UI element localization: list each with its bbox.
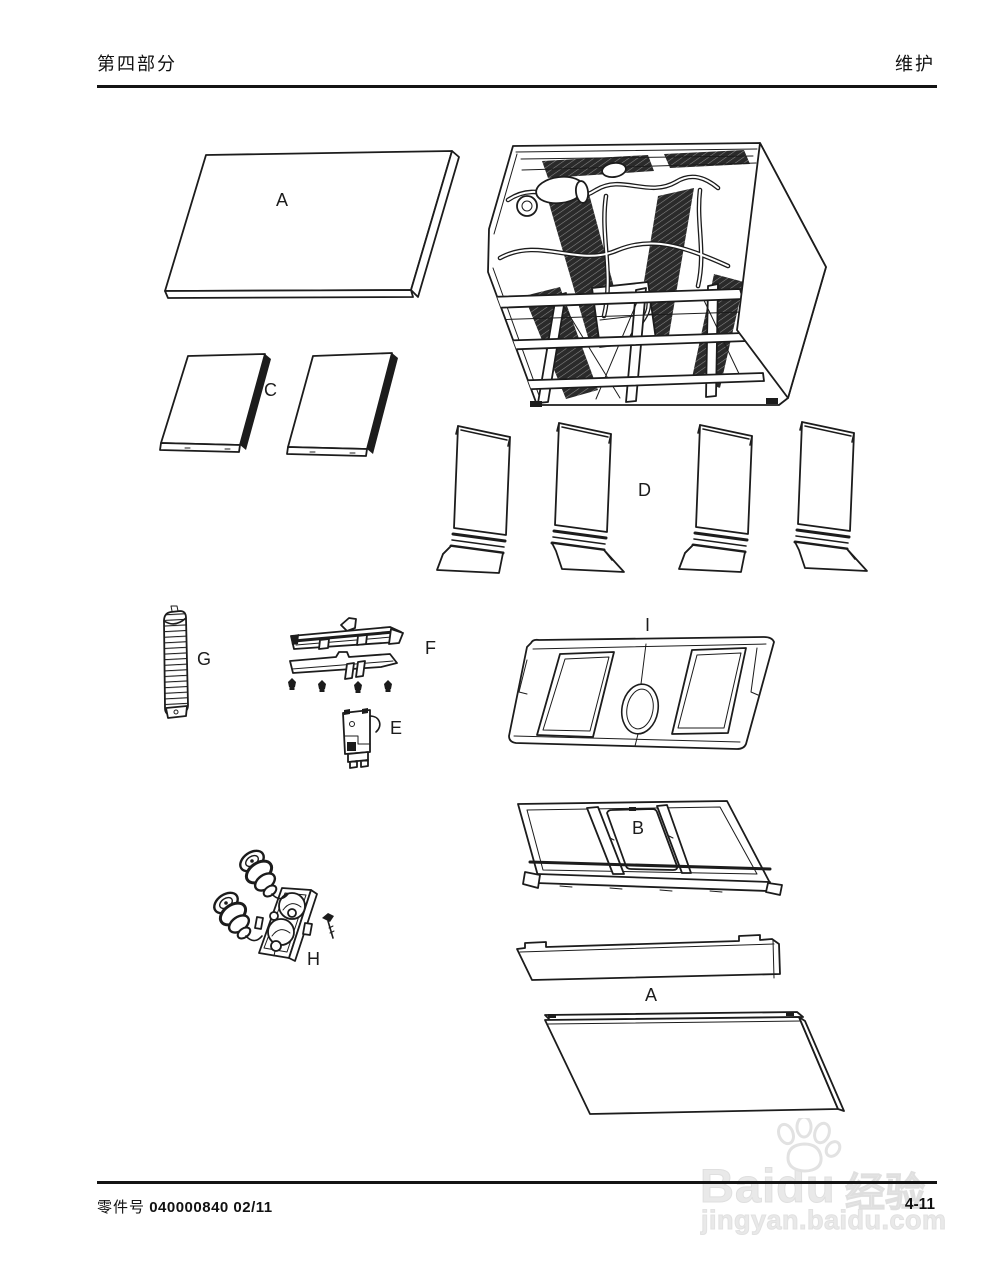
- bracket-e-drawing: [343, 708, 380, 768]
- manual-page: 第四部分 维护 Baidu 经验 jingyan.baidu.com: [0, 0, 989, 1280]
- part-label-g: G: [197, 649, 211, 669]
- panel-c-drawing: [160, 353, 398, 456]
- part-number-label: 零件号: [97, 1200, 145, 1216]
- panel-a-top-drawing: [165, 151, 459, 298]
- part-label-b: B: [632, 818, 644, 838]
- exploded-parts-diagram: A: [0, 0, 989, 1280]
- panel-i-drawing: [509, 637, 774, 749]
- hose-g-drawing: [164, 606, 188, 718]
- part-number-value: 040000840 02/11: [149, 1199, 272, 1216]
- corner-posts-d-drawing: [437, 422, 867, 573]
- rails-f-drawing: [288, 618, 403, 693]
- page-number: 4-11: [905, 1196, 935, 1214]
- panel-b-drawing: [518, 801, 782, 895]
- part-label-i: I: [645, 615, 650, 635]
- footer-part-number: 零件号 040000840 02/11: [97, 1196, 273, 1217]
- strip-a-drawing: [517, 935, 780, 980]
- part-label-c: C: [264, 380, 277, 400]
- part-label-a-bottom: A: [645, 985, 657, 1005]
- part-label-e: E: [390, 718, 402, 738]
- part-label-a-top: A: [276, 190, 288, 210]
- part-label-d: D: [638, 480, 651, 500]
- part-label-f: F: [425, 638, 436, 658]
- header-rule: [97, 85, 937, 88]
- main-unit-drawing: [488, 143, 826, 407]
- bottom-panel-drawing: [545, 1012, 844, 1114]
- valve-assembly-h-drawing: [210, 847, 334, 961]
- footer-rule: [97, 1181, 937, 1184]
- part-label-h: H: [307, 949, 320, 969]
